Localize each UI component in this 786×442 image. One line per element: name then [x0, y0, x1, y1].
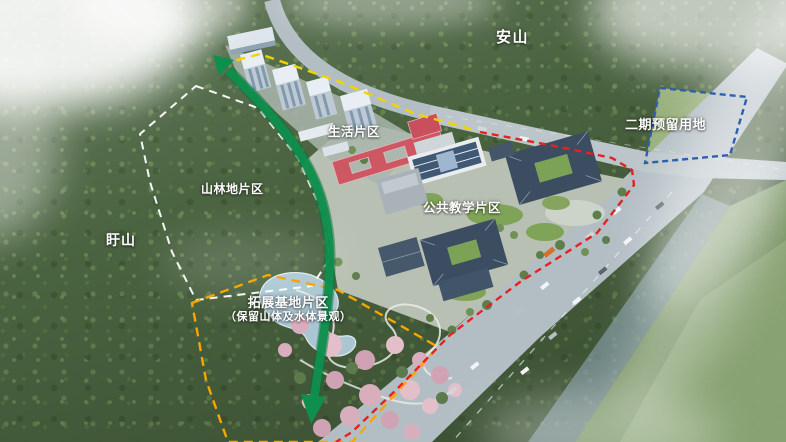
masterplan-aerial-rendering: 安山 二期预留用地 生活片区 山林地片区 盱山 公共教学片区 拓展基地片区 （保…: [0, 0, 786, 442]
site-plan-layers: [0, 0, 786, 442]
